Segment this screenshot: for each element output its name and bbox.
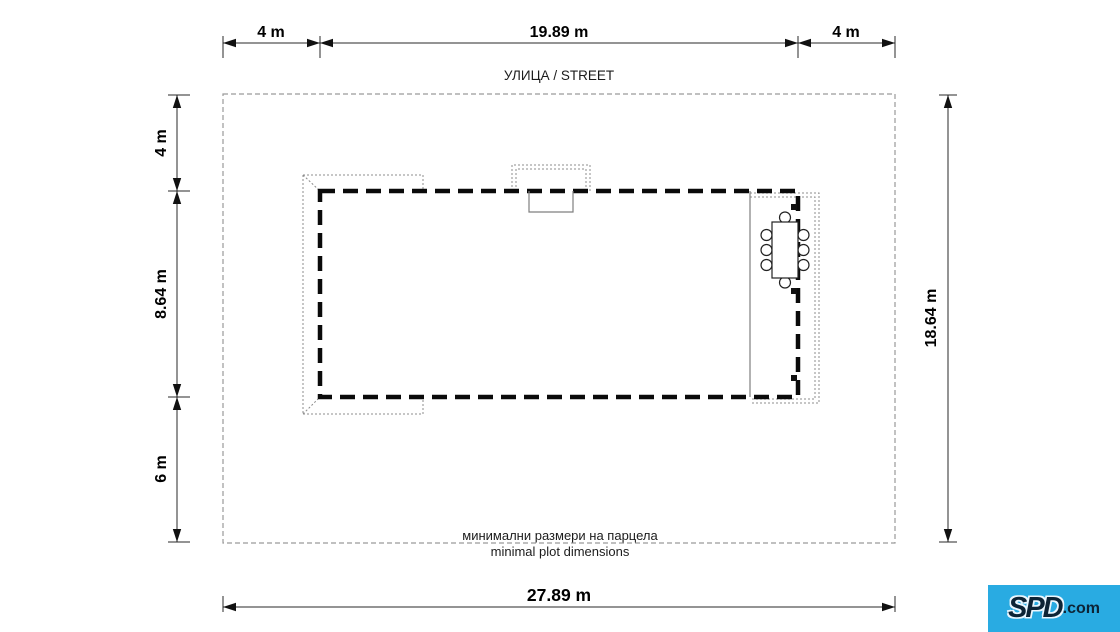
dimension-right: 18.64 m bbox=[923, 95, 957, 542]
entrance-canopy bbox=[529, 191, 573, 212]
building-footprint bbox=[320, 191, 798, 397]
brand-logo: SPD.com bbox=[988, 585, 1120, 632]
dimension-left: 4 m 8.64 m 6 m bbox=[153, 95, 190, 542]
brand-logo-suffix: .com bbox=[1063, 601, 1100, 617]
dim-top-right-setback: 4 m bbox=[832, 24, 860, 41]
plot-boundary bbox=[223, 94, 895, 543]
dim-top-left-setback: 4 m bbox=[257, 24, 285, 41]
dim-building-width: 19.89 m bbox=[530, 24, 589, 41]
dormer-outline bbox=[512, 165, 590, 191]
chair bbox=[780, 212, 791, 223]
dim-plot-depth: 18.64 m bbox=[923, 289, 940, 348]
chair bbox=[798, 230, 809, 241]
door-marker bbox=[791, 375, 797, 381]
dining-table bbox=[772, 222, 798, 278]
chair bbox=[761, 260, 772, 271]
chair bbox=[798, 245, 809, 256]
chair bbox=[761, 245, 772, 256]
chair bbox=[761, 230, 772, 241]
dim-left-bottom-setback: 6 m bbox=[153, 455, 170, 483]
dimension-top: 4 m 19.89 m 4 m bbox=[223, 24, 895, 58]
dim-left-top-setback: 4 m bbox=[153, 129, 170, 157]
site-plan-drawing: 4 m 19.89 m 4 m 4 m 8.64 m 6 m 18.64 m bbox=[0, 0, 1120, 632]
chair bbox=[780, 277, 791, 288]
dimension-bottom: 27.89 m bbox=[223, 585, 895, 612]
brand-logo-text: SPD bbox=[1008, 594, 1062, 623]
caption-english: minimal plot dimensions bbox=[491, 544, 630, 559]
door-marker bbox=[791, 204, 797, 210]
street-label: УЛИЦА / STREET bbox=[504, 68, 614, 83]
chair bbox=[798, 260, 809, 271]
dim-plot-width: 27.89 m bbox=[527, 585, 591, 605]
site-plan-page: 4 m 19.89 m 4 m 4 m 8.64 m 6 m 18.64 m bbox=[0, 0, 1120, 632]
caption-bulgarian: минимални размери на парцела bbox=[462, 528, 658, 543]
dim-building-depth: 8.64 m bbox=[153, 269, 170, 319]
door-marker bbox=[791, 288, 797, 294]
